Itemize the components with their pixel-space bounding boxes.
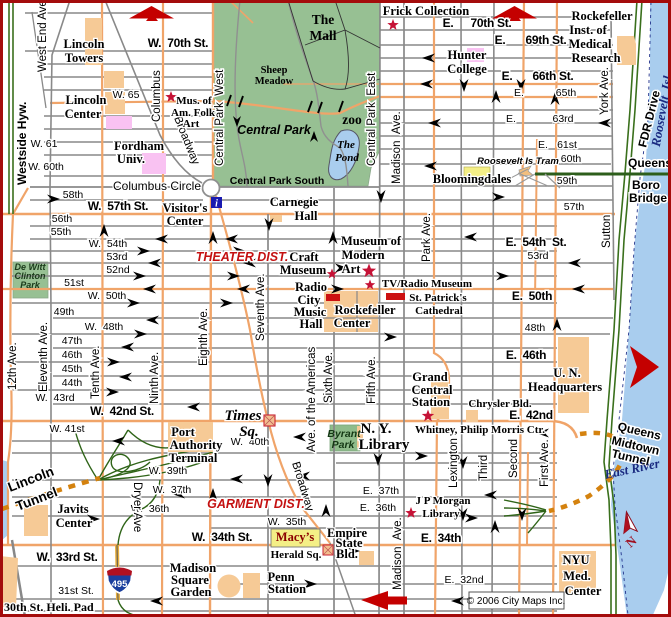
svg-text:44th: 44th	[62, 377, 83, 389]
svg-text:69th St.: 69th St.	[526, 33, 567, 47]
svg-text:58th: 58th	[63, 189, 84, 201]
svg-text:Central Park East: Central Park East	[366, 72, 378, 166]
svg-text:Research: Research	[571, 51, 620, 65]
svg-text:Center: Center	[65, 107, 102, 121]
svg-text:© 2006 City Maps Inc.: © 2006 City Maps Inc.	[467, 596, 566, 607]
svg-text:Chrysler Bld.: Chrysler Bld.	[468, 398, 532, 410]
svg-text:Park: Park	[20, 280, 41, 290]
svg-text:W. 60th: W. 60th	[28, 161, 64, 173]
svg-text:W. 41st: W. 41st	[49, 423, 84, 435]
svg-text:N. Y.: N. Y.	[361, 421, 392, 437]
svg-text:Central Park West: Central Park West	[214, 69, 226, 166]
svg-text:W. 54th: W. 54th	[89, 238, 128, 250]
svg-text:Terminal: Terminal	[169, 451, 218, 465]
svg-text:Mall: Mall	[310, 28, 337, 43]
svg-text:49th: 49th	[54, 306, 75, 318]
svg-text:W. 50th: W. 50th	[88, 290, 127, 302]
svg-text:Sq.: Sq.	[239, 424, 259, 440]
svg-text:Art: Art	[342, 262, 362, 276]
svg-text:61st: 61st	[557, 139, 577, 151]
svg-text:Boro: Boro	[632, 178, 660, 192]
svg-text:59th: 59th	[557, 175, 578, 187]
svg-text:W. 35th: W. 35th	[268, 516, 307, 528]
svg-text:Univ.: Univ.	[117, 152, 145, 166]
svg-text:Library: Library	[422, 508, 460, 520]
svg-text:Madison Ave.: Madison Ave.	[391, 111, 403, 184]
svg-text:Visitor's: Visitor's	[163, 201, 208, 215]
svg-text:Sheep: Sheep	[261, 65, 288, 76]
svg-text:W. 70th St.: W. 70th St.	[148, 36, 208, 50]
svg-text:The: The	[312, 12, 335, 27]
svg-text:W. 43rd: W. 43rd	[35, 392, 74, 404]
svg-text:Eleventh Ave.: Eleventh Ave.	[38, 322, 50, 392]
svg-text:53rd: 53rd	[527, 250, 548, 262]
svg-text:Madison Ave.: Madison Ave.	[392, 517, 404, 590]
svg-text:Inst. of: Inst. of	[569, 23, 607, 37]
svg-text:Hunter: Hunter	[448, 48, 487, 62]
svg-text:J P Morgan: J P Morgan	[416, 495, 471, 507]
svg-text:W. 61: W. 61	[31, 138, 58, 150]
svg-text:Mus. of: Mus. of	[176, 95, 212, 107]
svg-text:47th: 47th	[62, 335, 83, 347]
svg-text:Fifth Ave.: Fifth Ave.	[366, 356, 378, 404]
svg-text:70th St.: 70th St.	[471, 16, 512, 30]
svg-text:E.: E.	[495, 33, 506, 47]
svg-text:Pond: Pond	[335, 152, 359, 164]
svg-text:Central Park South: Central Park South	[230, 175, 325, 187]
svg-text:E. 54th St.: E. 54th St.	[506, 235, 567, 249]
svg-text:Frick Collection: Frick Collection	[383, 4, 469, 18]
svg-text:45th: 45th	[62, 363, 83, 375]
svg-text:Port: Port	[171, 425, 195, 439]
svg-text:Museum of: Museum of	[341, 234, 402, 248]
svg-text:48th: 48th	[525, 322, 546, 334]
svg-text:Herald Sq.: Herald Sq.	[271, 549, 322, 561]
svg-text:Museum: Museum	[280, 263, 327, 277]
svg-text:Center: Center	[167, 214, 204, 228]
svg-text:Rockefeller: Rockefeller	[571, 9, 633, 23]
svg-text:Roosevelt Is Tram: Roosevelt Is Tram	[477, 156, 559, 167]
svg-text:51st: 51st	[64, 277, 84, 289]
svg-text:Authority: Authority	[170, 438, 224, 452]
svg-text:Dryer Ave: Dryer Ave	[131, 482, 143, 532]
svg-text:30th St. Heli. Pad: 30th St. Heli. Pad	[4, 600, 94, 614]
svg-text:NYU: NYU	[562, 553, 589, 567]
svg-text:E. 32nd: E. 32nd	[444, 574, 483, 586]
svg-text:THEATER DIST.: THEATER DIST.	[196, 250, 289, 264]
svg-text:55th: 55th	[51, 226, 72, 238]
svg-text:Grand: Grand	[412, 370, 447, 384]
svg-text:Meadow: Meadow	[255, 76, 294, 87]
svg-text:Center: Center	[56, 516, 93, 530]
svg-text:Hall: Hall	[295, 209, 318, 223]
svg-text:Library: Library	[359, 437, 410, 453]
svg-text:53rd: 53rd	[106, 251, 127, 263]
svg-text:Queens-: Queens-	[628, 156, 671, 170]
svg-text:Park: Park	[332, 439, 356, 451]
svg-text:Javits: Javits	[57, 502, 88, 516]
svg-text:63rd: 63rd	[552, 113, 573, 125]
svg-text:Rockefeller: Rockefeller	[334, 303, 396, 317]
svg-text:Whitney, Philip Morris Ctr.: Whitney, Philip Morris Ctr.	[415, 424, 545, 436]
svg-text:W. 34th St.: W. 34th St.	[192, 530, 252, 544]
svg-text:Carnegie: Carnegie	[270, 195, 319, 209]
svg-text:Sutton: Sutton	[601, 215, 613, 248]
svg-text:U. N.: U. N.	[553, 366, 580, 380]
svg-text:Macy’s: Macy’s	[276, 530, 315, 544]
svg-text:W. 33rd St.: W. 33rd St.	[36, 550, 97, 564]
svg-text:GARMENT DIST.: GARMENT DIST.	[207, 497, 305, 511]
svg-text:65th: 65th	[556, 87, 577, 99]
svg-text:Station: Station	[268, 582, 306, 596]
svg-text:E. 42nd: E. 42nd	[509, 408, 553, 422]
svg-text:Craft: Craft	[289, 250, 319, 264]
svg-text:Second: Second	[508, 439, 520, 478]
svg-text:E.: E.	[443, 16, 454, 30]
svg-text:W. 39th: W. 39th	[149, 465, 188, 477]
svg-text:W. 65: W. 65	[113, 89, 140, 101]
svg-text:Headquarters: Headquarters	[528, 380, 602, 394]
svg-text:E.: E.	[538, 139, 548, 151]
svg-text:E. 34th: E. 34th	[421, 531, 461, 545]
svg-text:Bloomingdales: Bloomingdales	[433, 172, 512, 186]
svg-text:Westside Hyw.: Westside Hyw.	[15, 102, 29, 185]
svg-text:Columbus Circle: Columbus Circle	[113, 179, 201, 193]
svg-text:Bld.: Bld.	[336, 547, 358, 561]
svg-text:Ninth Ave.: Ninth Ave.	[149, 352, 161, 404]
svg-text:Eighth Ave.: Eighth Ave.	[198, 308, 210, 366]
svg-text:York Ave.: York Ave.	[599, 67, 611, 115]
svg-text:Cathedral: Cathedral	[415, 305, 463, 317]
svg-text:Center: Center	[565, 584, 602, 598]
svg-text:E. 36th: E. 36th	[360, 502, 396, 514]
svg-text:Center: Center	[334, 316, 371, 330]
svg-text:St. Patrick's: St. Patrick's	[409, 292, 467, 304]
svg-text:TV/Radio Museum: TV/Radio Museum	[382, 278, 472, 290]
svg-text:Medical: Medical	[568, 37, 612, 51]
svg-text:The: The	[337, 139, 355, 151]
svg-text:Station: Station	[412, 395, 450, 409]
svg-text:57th: 57th	[564, 201, 585, 213]
svg-text:First Ave.: First Ave.	[539, 439, 551, 487]
svg-text:Garden: Garden	[171, 585, 212, 599]
svg-text:Central Park: Central Park	[237, 123, 312, 137]
svg-text:West End Ave.: West End Ave.	[37, 0, 49, 72]
svg-text:Modern: Modern	[341, 248, 384, 262]
svg-text:Columbus: Columbus	[151, 70, 163, 122]
svg-text:E. 50th: E. 50th	[512, 289, 552, 303]
svg-text:46th: 46th	[62, 349, 83, 361]
svg-text:52nd: 52nd	[106, 264, 130, 276]
svg-text:31st St.: 31st St.	[58, 585, 94, 597]
svg-text:Bridge: Bridge	[629, 191, 667, 205]
svg-text:W. 57th St.: W. 57th St.	[88, 199, 148, 213]
svg-text:Hall: Hall	[300, 317, 323, 331]
svg-text:W. 37th: W. 37th	[153, 484, 192, 496]
svg-text:E.: E.	[502, 69, 513, 83]
svg-text:Lexington: Lexington	[448, 438, 460, 488]
svg-text:Fordham: Fordham	[114, 139, 165, 153]
svg-text:Sixth Ave.: Sixth Ave.	[323, 352, 335, 403]
svg-text:66th St.: 66th St.	[533, 69, 574, 83]
svg-text:W. 42nd St.: W. 42nd St.	[90, 404, 154, 418]
svg-text:i: i	[215, 199, 218, 210]
svg-text:E.: E.	[514, 87, 524, 99]
svg-text:Seventh Ave.: Seventh Ave.	[255, 273, 267, 341]
svg-text:495: 495	[112, 579, 129, 590]
svg-text:Third: Third	[478, 455, 490, 481]
svg-text:Ave. of the Americas: Ave. of the Americas	[306, 346, 318, 452]
svg-text:W. 48th: W. 48th	[85, 321, 124, 333]
svg-text:60th: 60th	[561, 153, 582, 165]
svg-text:E.: E.	[506, 113, 516, 125]
svg-text:Art: Art	[183, 118, 200, 130]
svg-text:12th Ave.: 12th Ave.	[7, 342, 19, 390]
svg-text:Med.: Med.	[563, 569, 590, 583]
svg-text:Tenth Ave.: Tenth Ave.	[90, 346, 102, 400]
svg-text:College: College	[447, 62, 487, 76]
svg-text:Lincoln: Lincoln	[64, 37, 105, 51]
svg-text:Lincoln: Lincoln	[66, 93, 107, 107]
svg-text:Radio: Radio	[295, 280, 327, 294]
svg-text:Times: Times	[225, 408, 262, 424]
svg-text:zoo: zoo	[342, 112, 362, 127]
svg-text:Park Ave.: Park Ave.	[421, 213, 433, 262]
svg-text:56th: 56th	[52, 213, 73, 225]
svg-text:E. 46th: E. 46th	[506, 348, 546, 362]
svg-text:Towers: Towers	[65, 51, 104, 65]
svg-text:E. 37th: E. 37th	[363, 485, 399, 497]
